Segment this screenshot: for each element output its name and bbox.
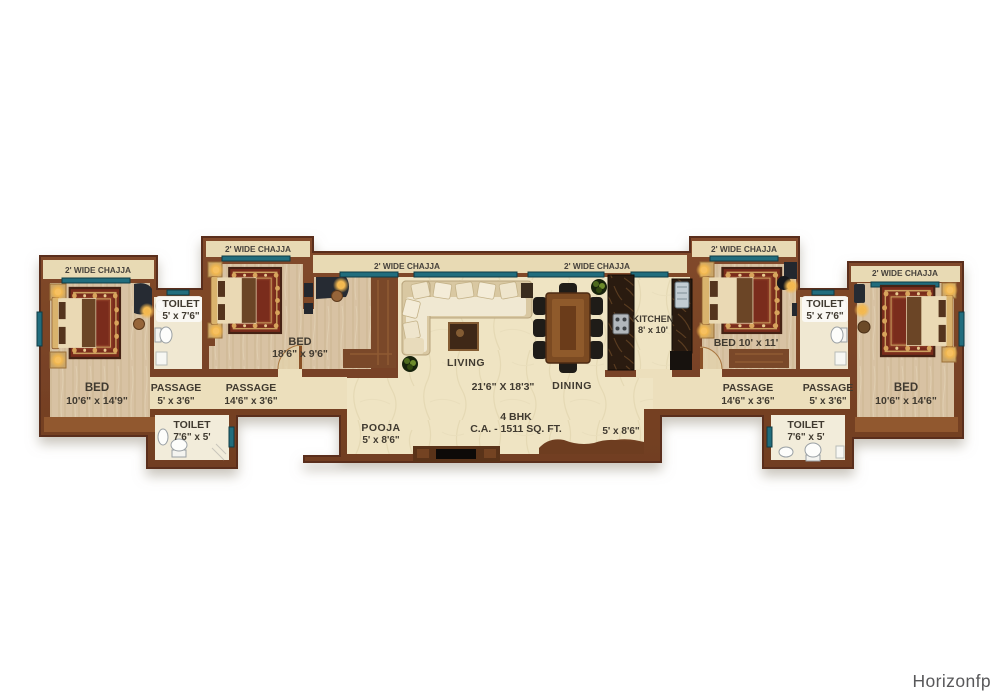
svg-text:BED 10' x 11': BED 10' x 11' xyxy=(714,337,779,349)
svg-text:TOILET: TOILET xyxy=(787,419,825,431)
svg-text:2' WIDE CHAJJA: 2' WIDE CHAJJA xyxy=(872,268,938,278)
svg-text:PASSAGE: PASSAGE xyxy=(723,382,774,394)
svg-text:POOJA: POOJA xyxy=(361,422,400,434)
svg-text:PASSAGE: PASSAGE xyxy=(803,382,854,394)
svg-text:PASSAGE: PASSAGE xyxy=(151,382,202,394)
svg-text:2' WIDE CHAJJA: 2' WIDE CHAJJA xyxy=(564,261,630,271)
svg-text:5' x 8'6": 5' x 8'6" xyxy=(362,435,400,446)
svg-text:2' WIDE CHAJJA: 2' WIDE CHAJJA xyxy=(65,265,131,275)
svg-text:2' WIDE CHAJJA: 2' WIDE CHAJJA xyxy=(225,244,291,254)
svg-text:TOILET: TOILET xyxy=(162,298,200,310)
svg-text:TOILET: TOILET xyxy=(806,298,844,310)
svg-text:BED: BED xyxy=(894,382,918,394)
svg-text:PASSAGE: PASSAGE xyxy=(226,382,277,394)
svg-text:2' WIDE CHAJJA: 2' WIDE CHAJJA xyxy=(711,244,777,254)
svg-text:C.A. - 1511 SQ. FT.: C.A. - 1511 SQ. FT. xyxy=(470,423,562,435)
svg-text:LIVING: LIVING xyxy=(447,357,485,369)
svg-text:14'6" x 3'6": 14'6" x 3'6" xyxy=(721,396,774,407)
svg-text:18'6" x 9'6": 18'6" x 9'6" xyxy=(272,348,328,360)
svg-text:5' x 3'6": 5' x 3'6" xyxy=(809,396,847,407)
svg-text:KITCHEN: KITCHEN xyxy=(633,314,674,324)
svg-text:5' x 3'6": 5' x 3'6" xyxy=(157,396,195,407)
svg-text:2' WIDE CHAJJA: 2' WIDE CHAJJA xyxy=(374,261,440,271)
svg-text:8' x 10': 8' x 10' xyxy=(638,325,668,335)
svg-text:7'6" x 5': 7'6" x 5' xyxy=(787,432,824,443)
svg-text:5' x 7'6": 5' x 7'6" xyxy=(162,311,200,322)
svg-text:DINING: DINING xyxy=(552,380,592,392)
svg-text:10'6" x 14'6": 10'6" x 14'6" xyxy=(875,395,937,407)
svg-text:4 BHK: 4 BHK xyxy=(500,411,532,423)
svg-text:TOILET: TOILET xyxy=(173,419,211,431)
svg-text:BED: BED xyxy=(288,336,311,348)
svg-text:14'6" x 3'6": 14'6" x 3'6" xyxy=(224,396,277,407)
svg-text:7'6" x 5': 7'6" x 5' xyxy=(173,432,210,443)
svg-text:BED: BED xyxy=(85,382,109,394)
svg-text:5' x 7'6": 5' x 7'6" xyxy=(806,311,844,322)
svg-text:21'6" X 18'3": 21'6" X 18'3" xyxy=(472,381,535,393)
svg-text:5' x 8'6": 5' x 8'6" xyxy=(602,426,640,437)
svg-text:10'6" x 14'9": 10'6" x 14'9" xyxy=(66,395,128,407)
